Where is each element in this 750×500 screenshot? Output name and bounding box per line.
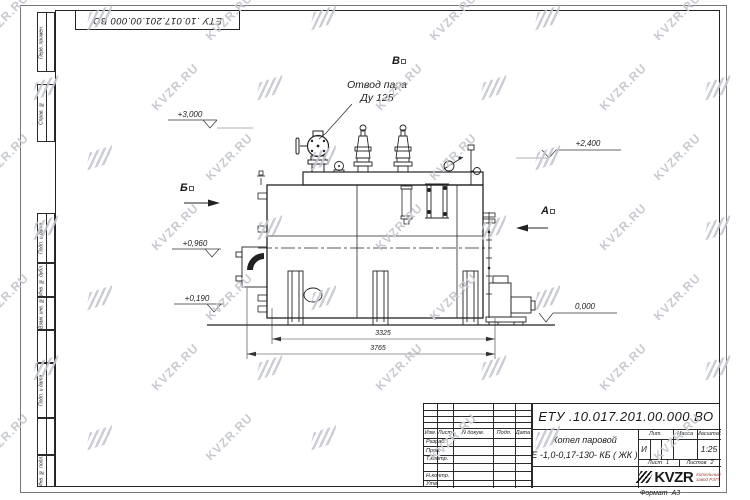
- view-marker-symbol: [401, 59, 406, 64]
- margin-field: Справ. №: [37, 84, 55, 142]
- format-label: Формат А3: [600, 488, 720, 498]
- sight-glass: [304, 288, 322, 302]
- elevation-plus0960: +0,960: [170, 239, 220, 248]
- steam-outlet-callout-line1: Отвод пара: [333, 79, 421, 91]
- scale-header: Масштаб: [697, 429, 721, 439]
- lit-header: Лит.: [638, 429, 673, 439]
- support-legs-group: [288, 271, 478, 325]
- col-data: Дата: [515, 428, 531, 438]
- elevation-marks-group: [168, 120, 621, 322]
- product-name: Котел паровой Е -1,0-0,17-130- КБ ( ЖК ): [531, 429, 638, 466]
- col-izm: Изм.: [424, 428, 437, 438]
- row-utv: Утв.: [424, 480, 455, 488]
- top-rotated-stamp: ЕТУ .10.017.201.00.000 ВО: [75, 10, 240, 30]
- margin-field: Перв. примен.: [37, 12, 55, 72]
- sheet-cell: Лист 1: [638, 459, 679, 466]
- row-razrab: Разраб.: [424, 438, 455, 446]
- blower-group: [486, 276, 535, 325]
- company-logo: KVZR Котельный завод РЭП: [638, 466, 721, 488]
- col-ndoc: N докум.: [453, 428, 493, 438]
- section-arrows-group: [184, 200, 548, 232]
- col-podp: Подп.: [493, 428, 515, 438]
- elevation-zero: 0,000: [557, 302, 613, 311]
- lit-value: И: [638, 439, 650, 459]
- margin-field: Инв. № подл.: [37, 455, 55, 487]
- steam-outlet-callout-line2: Ду 125: [333, 92, 421, 104]
- view-marker-b: Б: [180, 182, 194, 194]
- dimension-3325: 3325: [358, 330, 408, 337]
- lever-valve-group: [444, 145, 481, 185]
- sheets-cell: Листов 2: [679, 459, 721, 466]
- view-marker-symbol: [550, 209, 555, 214]
- drawing-sheet: Перв. примен.Справ. №Подп. и датаИнв. № …: [0, 0, 750, 500]
- left-nozzles-group: [257, 171, 267, 312]
- margin-field: Взам. инв. №: [37, 297, 55, 330]
- deck-fitting-group: [334, 162, 344, 173]
- title-block: ЕТУ .10.017.201.00.000 ВО Изм. Лист N до…: [423, 403, 720, 487]
- callout-leader-line: [319, 104, 352, 139]
- elevation-plus0190: +0,190: [172, 294, 222, 303]
- margin-field: Подп. и дата: [37, 363, 55, 418]
- margin-field: [37, 330, 55, 363]
- view-marker-a: А: [541, 205, 555, 217]
- top-stamp-doc-number: ЕТУ .10.017.201.00.000 ВО: [93, 15, 222, 26]
- scale-value: 1:25: [697, 439, 721, 459]
- kvzr-logo-text: KVZR: [654, 469, 693, 486]
- margin-field: Инв. № дубл.: [37, 263, 55, 297]
- view-marker-symbol: [189, 186, 194, 191]
- kvzr-logo-icon: [636, 471, 655, 483]
- steam-valve-group: [296, 131, 329, 172]
- elevation-plus2400: +2,400: [560, 139, 616, 148]
- level-indicator-group: [425, 184, 449, 218]
- row-tkontr: Т.контр.: [424, 455, 455, 463]
- row-nkontr: Н.контр.: [424, 471, 455, 480]
- margin-field: Подп. и дата: [37, 213, 55, 263]
- mass-header: Масса: [673, 429, 697, 439]
- margin-field: [37, 418, 55, 455]
- dimension-3765: 3765: [353, 345, 403, 352]
- boiler-body-group: [258, 172, 492, 318]
- kvzr-logo-subtext: Котельный завод РЭП: [696, 472, 720, 483]
- view-marker-v: В: [392, 55, 406, 67]
- title-doc-number: ЕТУ .10.017.201.00.000 ВО: [531, 404, 721, 429]
- safety-valves-group: [354, 125, 412, 172]
- water-gauge-group: [401, 185, 412, 224]
- row-prov: Пров.: [424, 446, 455, 455]
- burner-group: [236, 247, 267, 287]
- elevation-plus3000: +3,000: [165, 110, 215, 119]
- col-list: Лист: [437, 428, 453, 438]
